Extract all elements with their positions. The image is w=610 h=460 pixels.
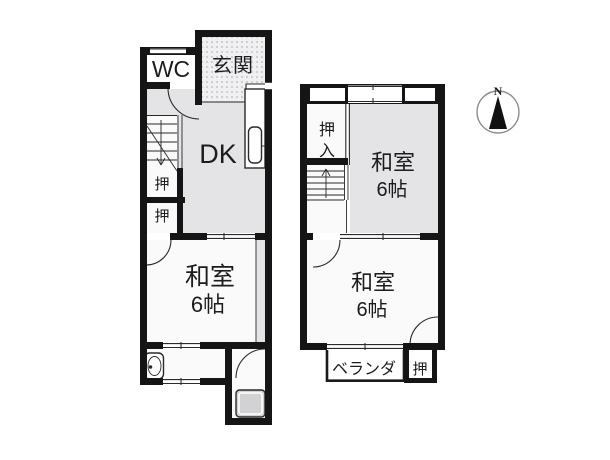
floor1-plan: WC 玄関 DK 押 押 和室 6帖: [140, 30, 272, 425]
window-2f-left: [310, 88, 345, 101]
fusuma-2f-divider: [340, 233, 420, 240]
washitsu-1f-floor: [147, 240, 265, 342]
compass-north-label: N: [494, 84, 503, 98]
room-label-closet-lower: 押: [154, 208, 169, 225]
sliding-door-washitsu-washroom: [163, 342, 200, 349]
window-2f-right: [405, 88, 435, 101]
room-label-oshiire-top: 押: [319, 121, 335, 139]
room-label-washitsu-2f-south: 和室: [351, 270, 395, 295]
window-2f-center: [348, 86, 402, 104]
room-label-wc: WC: [152, 56, 190, 82]
room-label-veranda: ベランダ: [332, 360, 396, 378]
room-size-washitsu-2f-north: 6帖: [376, 178, 407, 201]
fusuma-oshiire: [346, 104, 350, 165]
sliding-door-dk-washitsu: [207, 233, 255, 240]
washbasin: [145, 353, 164, 379]
room-label-oshiire-bottom: 入: [319, 143, 335, 160]
entrance-opening: [265, 82, 272, 90]
room-label-closet-2f: 押: [412, 361, 427, 378]
room-label-closet-upper: 押: [154, 176, 169, 193]
window-washroom: [163, 378, 200, 385]
kitchen-sink: [249, 127, 262, 163]
compass-needle-icon: [489, 96, 507, 129]
room-size-washitsu-2f-south: 6帖: [356, 298, 387, 321]
bathtub: [236, 390, 265, 417]
room-label-genkan: 玄関: [212, 54, 254, 77]
room-label-washitsu-2f-north: 和室: [371, 150, 415, 175]
kitchen-counter: [245, 89, 266, 168]
stairhall-floor: [307, 165, 346, 233]
floorplan-image: WC 玄関 DK 押 押 和室 6帖: [0, 0, 610, 460]
veranda-door: [327, 343, 403, 350]
floor2-plan: 押 入 和室 6帖 和室 6帖 ベランダ 押: [300, 84, 445, 383]
compass: N: [477, 84, 519, 133]
room-size-washitsu-1f: 6帖: [191, 292, 225, 317]
washitsu-1f-edge-strip: [257, 240, 266, 342]
room-label-washitsu-1f: 和室: [185, 263, 235, 291]
room-label-dk: DK: [199, 139, 237, 169]
